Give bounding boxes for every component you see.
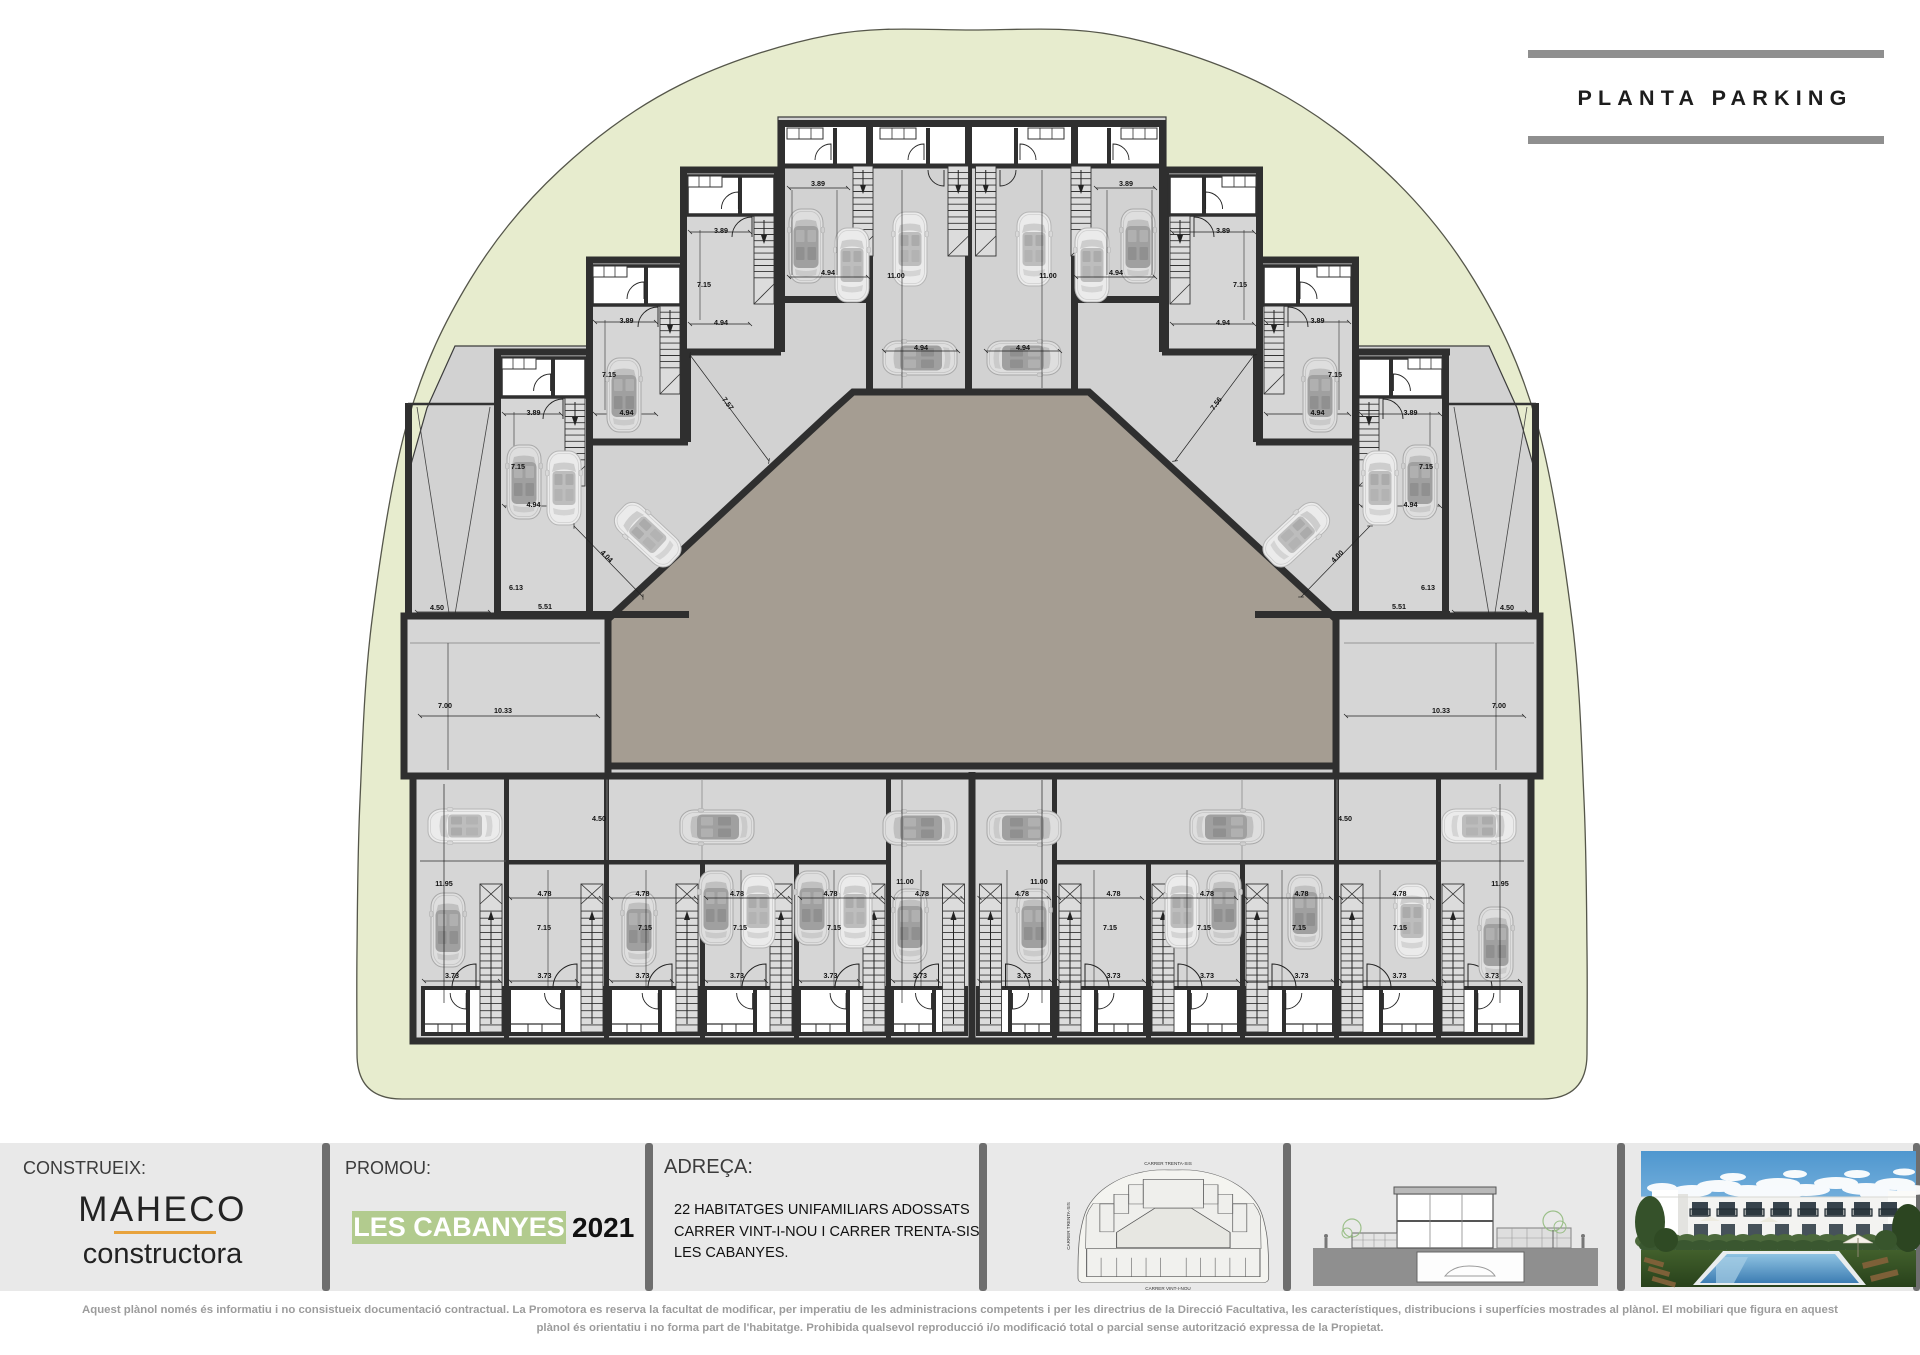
svg-text:CARRER VINT-I-NOU: CARRER VINT-I-NOU bbox=[1145, 1286, 1190, 1291]
svg-text:CARRER TRENTA-SIS: CARRER TRENTA-SIS bbox=[1066, 1202, 1071, 1250]
svg-text:CARRER TRENTA-SIS: CARRER TRENTA-SIS bbox=[1144, 1161, 1192, 1166]
